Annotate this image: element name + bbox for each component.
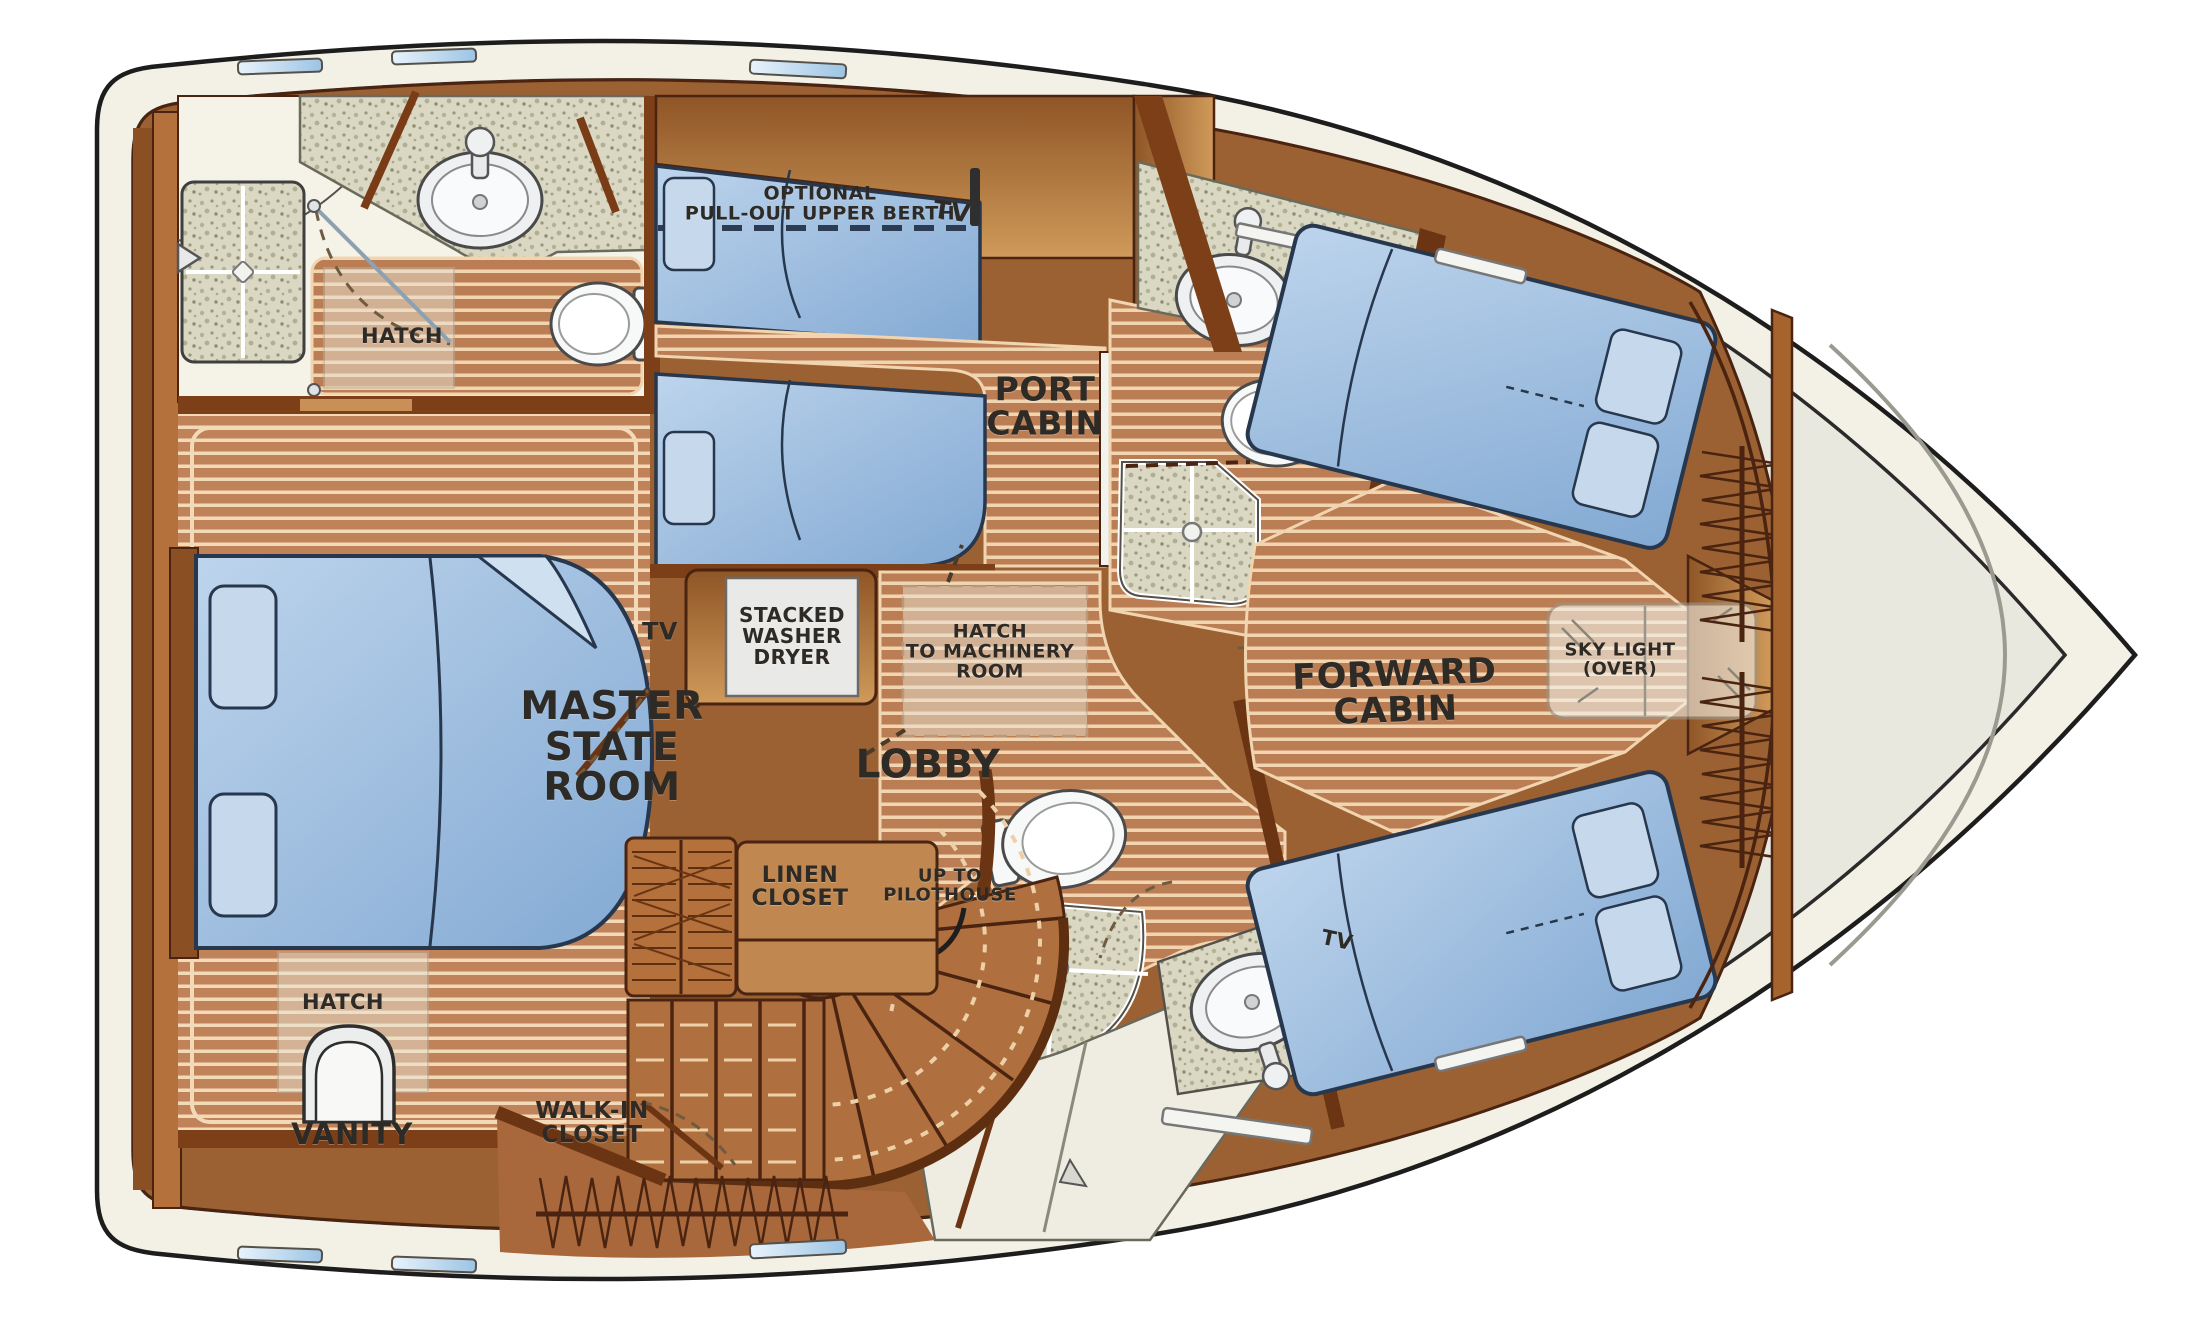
stern-bulkhead — [133, 128, 153, 1190]
shelf-locker — [626, 838, 736, 996]
master-stateroom — [170, 414, 700, 1148]
master-head — [178, 92, 660, 414]
guest-shower — [1120, 462, 1258, 604]
vanity-stool — [304, 1026, 394, 1122]
pillow — [210, 586, 276, 708]
bow-bulkhead — [1772, 310, 1792, 1000]
pillow — [210, 794, 276, 916]
washer-dryer — [686, 570, 876, 704]
master-bed — [170, 548, 652, 958]
master-head-toilet — [551, 283, 656, 365]
floor-plan-drawing — [0, 0, 2200, 1320]
machinery-hatch-panel — [903, 586, 1087, 736]
washer-dryer-box — [726, 578, 858, 696]
forward-cabin — [1244, 214, 1792, 1106]
yacht-floor-plan: HATCH OPTIONAL PULL-OUT UPPER BERTH TV P… — [0, 0, 2200, 1320]
linen-closet-cabinet — [737, 842, 937, 994]
master-shower — [178, 182, 304, 362]
skylight — [1548, 604, 1756, 718]
tv-port-screen — [970, 168, 980, 226]
